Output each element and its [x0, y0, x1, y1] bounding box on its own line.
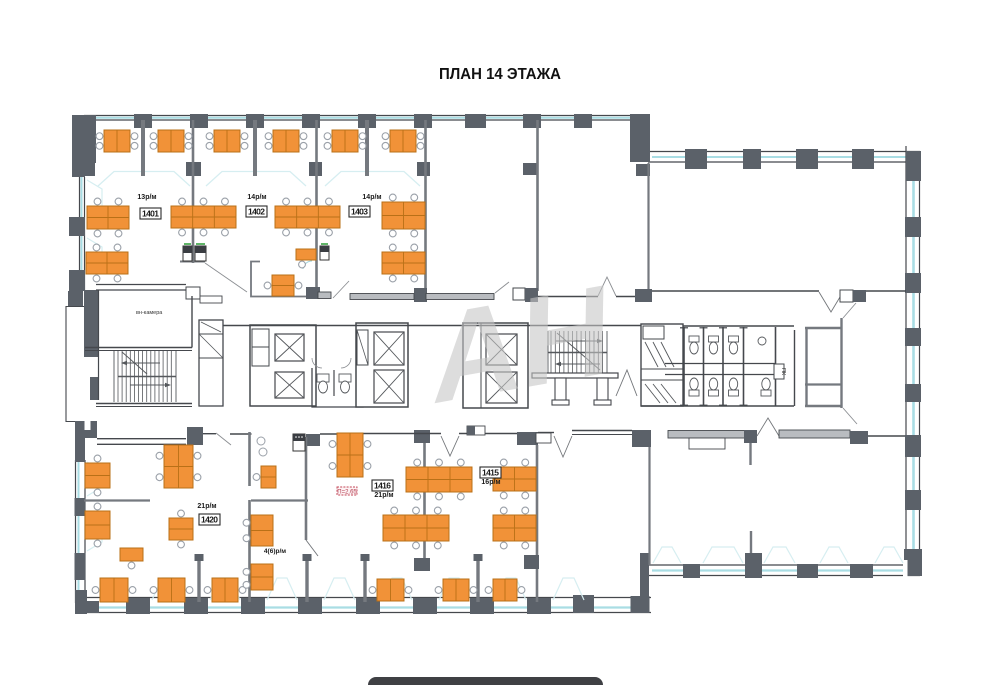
svg-text:14р/м: 14р/м [362, 194, 381, 201]
svg-text:1401: 1401 [142, 209, 159, 219]
svg-text:13р/м: 13р/м [137, 194, 156, 201]
svg-text:вн-камера: вн-камера [136, 310, 163, 316]
svg-text:21р/м: 21р/м [374, 492, 393, 499]
svg-text:1403: 1403 [351, 207, 368, 217]
svg-text:16р/м: 16р/м [481, 479, 500, 486]
svg-text:4(6)р/м: 4(6)р/м [264, 548, 286, 555]
svg-text:14р/м: 14р/м [247, 194, 266, 201]
svg-text:1415: 1415 [482, 468, 499, 478]
svg-text:1420: 1420 [201, 515, 218, 525]
svg-text:П=2.65: П=2.65 [337, 490, 357, 496]
svg-text:1402: 1402 [248, 207, 265, 217]
svg-text:21р/м: 21р/м [197, 503, 216, 510]
svg-text:ПК: ПК [780, 368, 786, 376]
svg-text:1416: 1416 [374, 481, 391, 491]
svg-text:ПЛАН 14 ЭТАЖА: ПЛАН 14 ЭТАЖА [439, 66, 561, 83]
